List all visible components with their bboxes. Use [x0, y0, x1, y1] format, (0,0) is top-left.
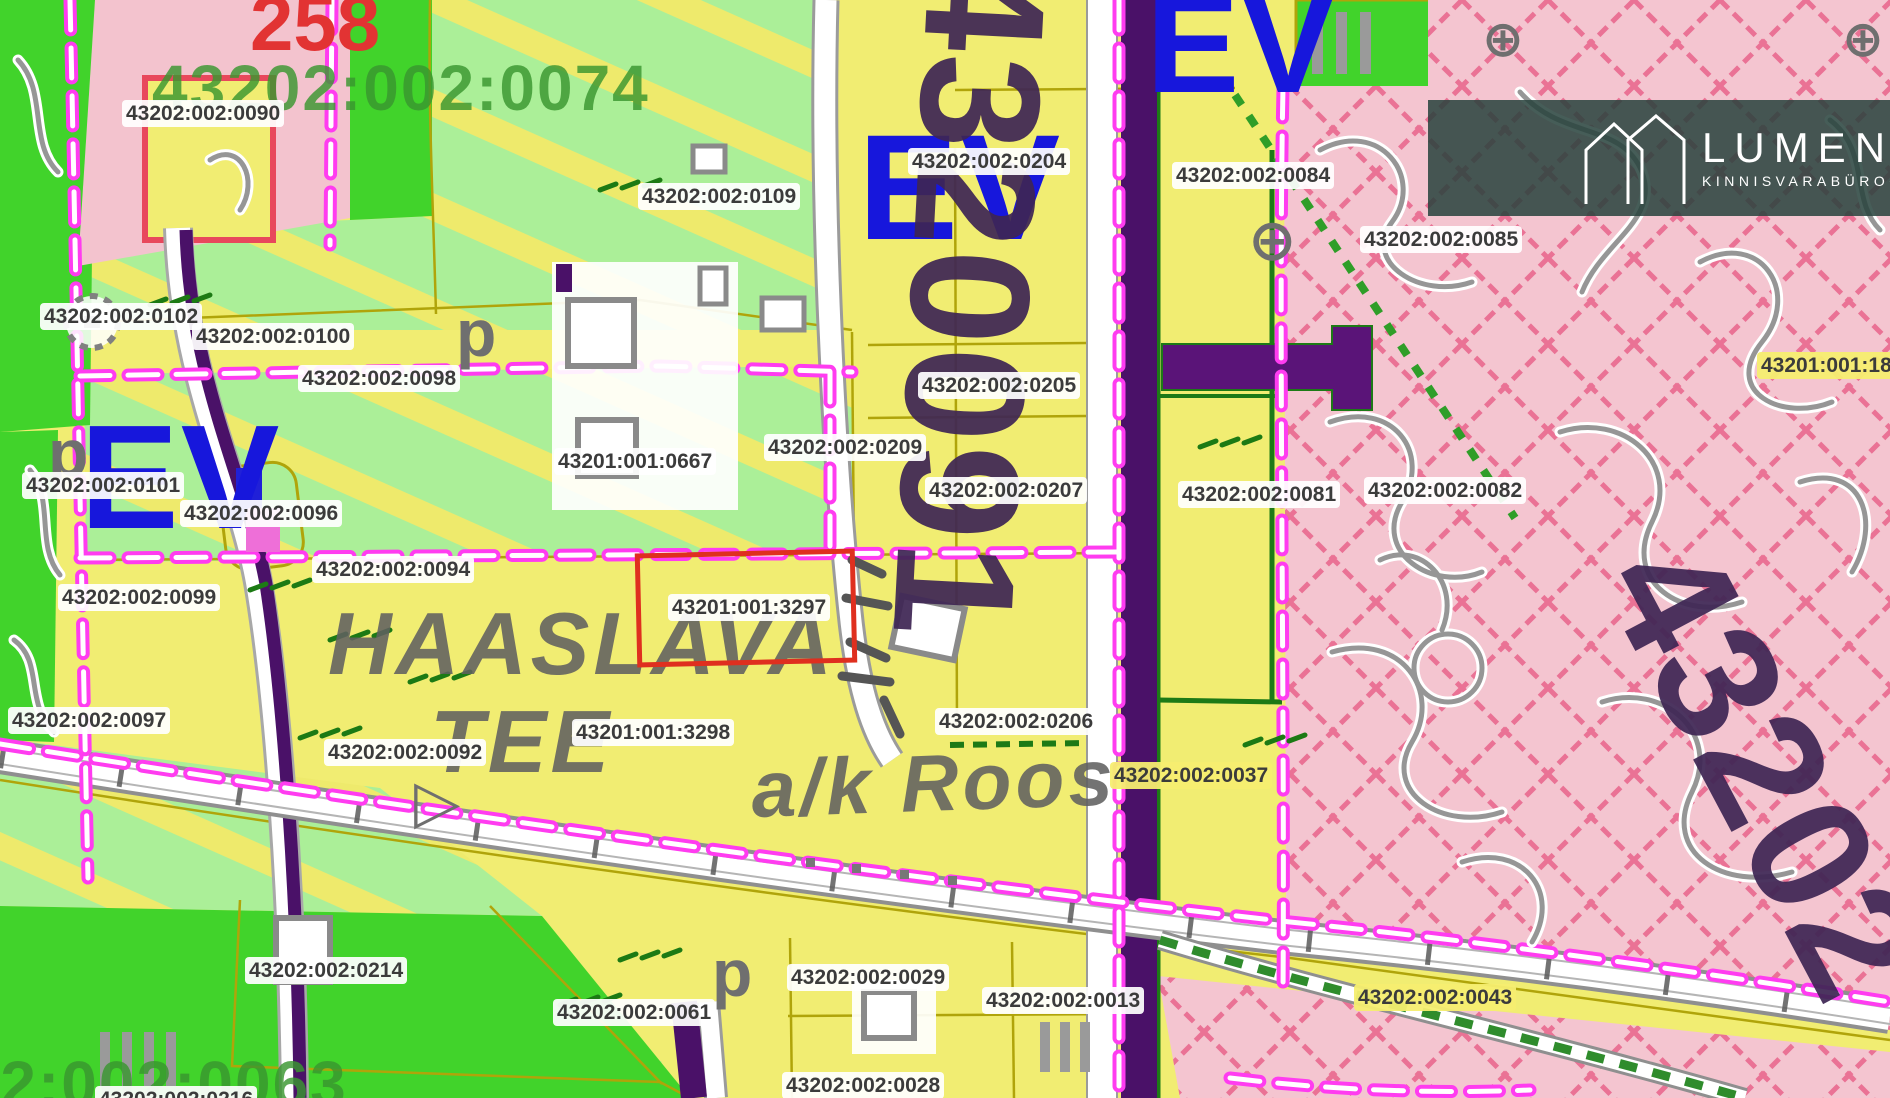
field-green-strip	[350, 0, 432, 220]
map-viewport[interactable]: 25843202:002:007443202:002:0063EVEVEV432…	[0, 0, 1890, 1098]
logo-subtitle: KINNISVARABÜROO	[1702, 173, 1890, 189]
watermark-logo: LUMEN KINNISVARABÜROO	[1428, 100, 1890, 216]
road-south-purple	[684, 1002, 716, 1098]
highlight-rect	[635, 549, 858, 668]
logo-name: LUMEN	[1702, 127, 1890, 169]
lumen-house-icon	[1578, 112, 1688, 204]
